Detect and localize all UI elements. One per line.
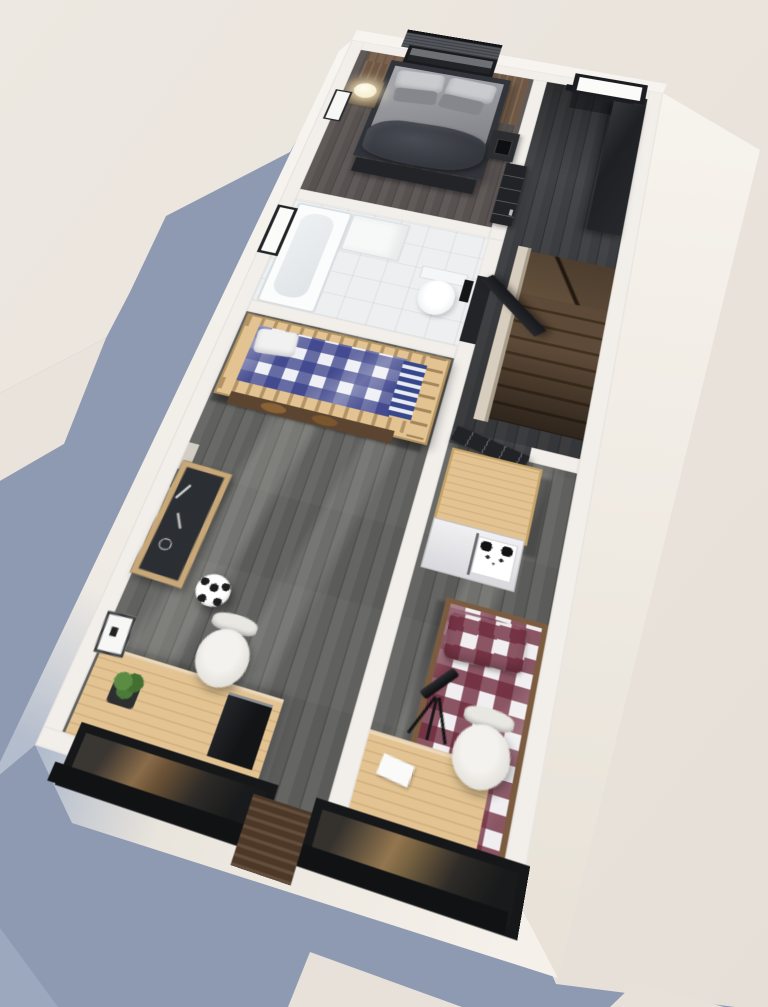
chalk-doodle-2	[177, 513, 182, 529]
chalk-doodle-3	[157, 537, 174, 552]
frame-artwork-mark	[109, 626, 119, 636]
telescope-tube	[419, 668, 459, 700]
chalk-doodle-1	[175, 484, 192, 498]
telescope-leg-right	[438, 698, 447, 745]
render-stage: 3D isometric dollhouse floor-plan render…	[0, 0, 768, 1007]
